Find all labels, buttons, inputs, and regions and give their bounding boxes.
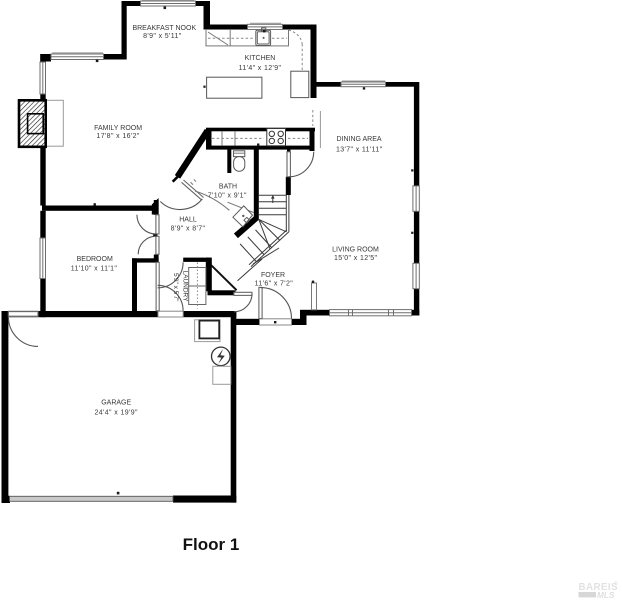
svg-text:KITCHEN: KITCHEN bbox=[245, 55, 276, 62]
svg-text:5'9" x 5'7": 5'9" x 5'7" bbox=[172, 273, 179, 302]
svg-text:17'8" x 16'2": 17'8" x 16'2" bbox=[96, 133, 139, 140]
svg-text:BREAKFAST NOOK: BREAKFAST NOOK bbox=[132, 25, 196, 32]
svg-text:FOYER: FOYER bbox=[261, 272, 285, 279]
svg-text:BATH: BATH bbox=[219, 184, 237, 191]
svg-text:8'9" x 8'7": 8'9" x 8'7" bbox=[171, 226, 206, 233]
svg-text:13'7" x 11'11": 13'7" x 11'11" bbox=[336, 146, 383, 153]
svg-text:GARAGE: GARAGE bbox=[101, 399, 131, 406]
svg-text:®: ® bbox=[614, 580, 618, 587]
svg-text:11'10" x 11'1": 11'10" x 11'1" bbox=[71, 266, 118, 273]
svg-text:7'10" x 9'1": 7'10" x 9'1" bbox=[208, 192, 247, 199]
svg-text:LIVING ROOM: LIVING ROOM bbox=[332, 247, 379, 254]
svg-text:24'4" x 19'9": 24'4" x 19'9" bbox=[95, 409, 138, 416]
svg-text:8'9" x 5'11": 8'9" x 5'11" bbox=[143, 33, 182, 40]
svg-text:BEDROOM: BEDROOM bbox=[77, 256, 113, 263]
svg-text:DINING AREA: DINING AREA bbox=[336, 136, 381, 143]
svg-text:15'0" x 12'5": 15'0" x 12'5" bbox=[334, 255, 377, 262]
svg-text:HALL: HALL bbox=[179, 216, 197, 223]
svg-text:FAMILY ROOM: FAMILY ROOM bbox=[94, 125, 142, 132]
svg-text:11'6" x 7'2": 11'6" x 7'2" bbox=[255, 280, 294, 287]
svg-text:MLS: MLS bbox=[597, 591, 615, 600]
svg-text:LAUNDRY: LAUNDRY bbox=[182, 271, 189, 303]
svg-text:11'4" x 12'9": 11'4" x 12'9" bbox=[239, 65, 282, 72]
svg-text:Floor 1: Floor 1 bbox=[183, 535, 240, 554]
